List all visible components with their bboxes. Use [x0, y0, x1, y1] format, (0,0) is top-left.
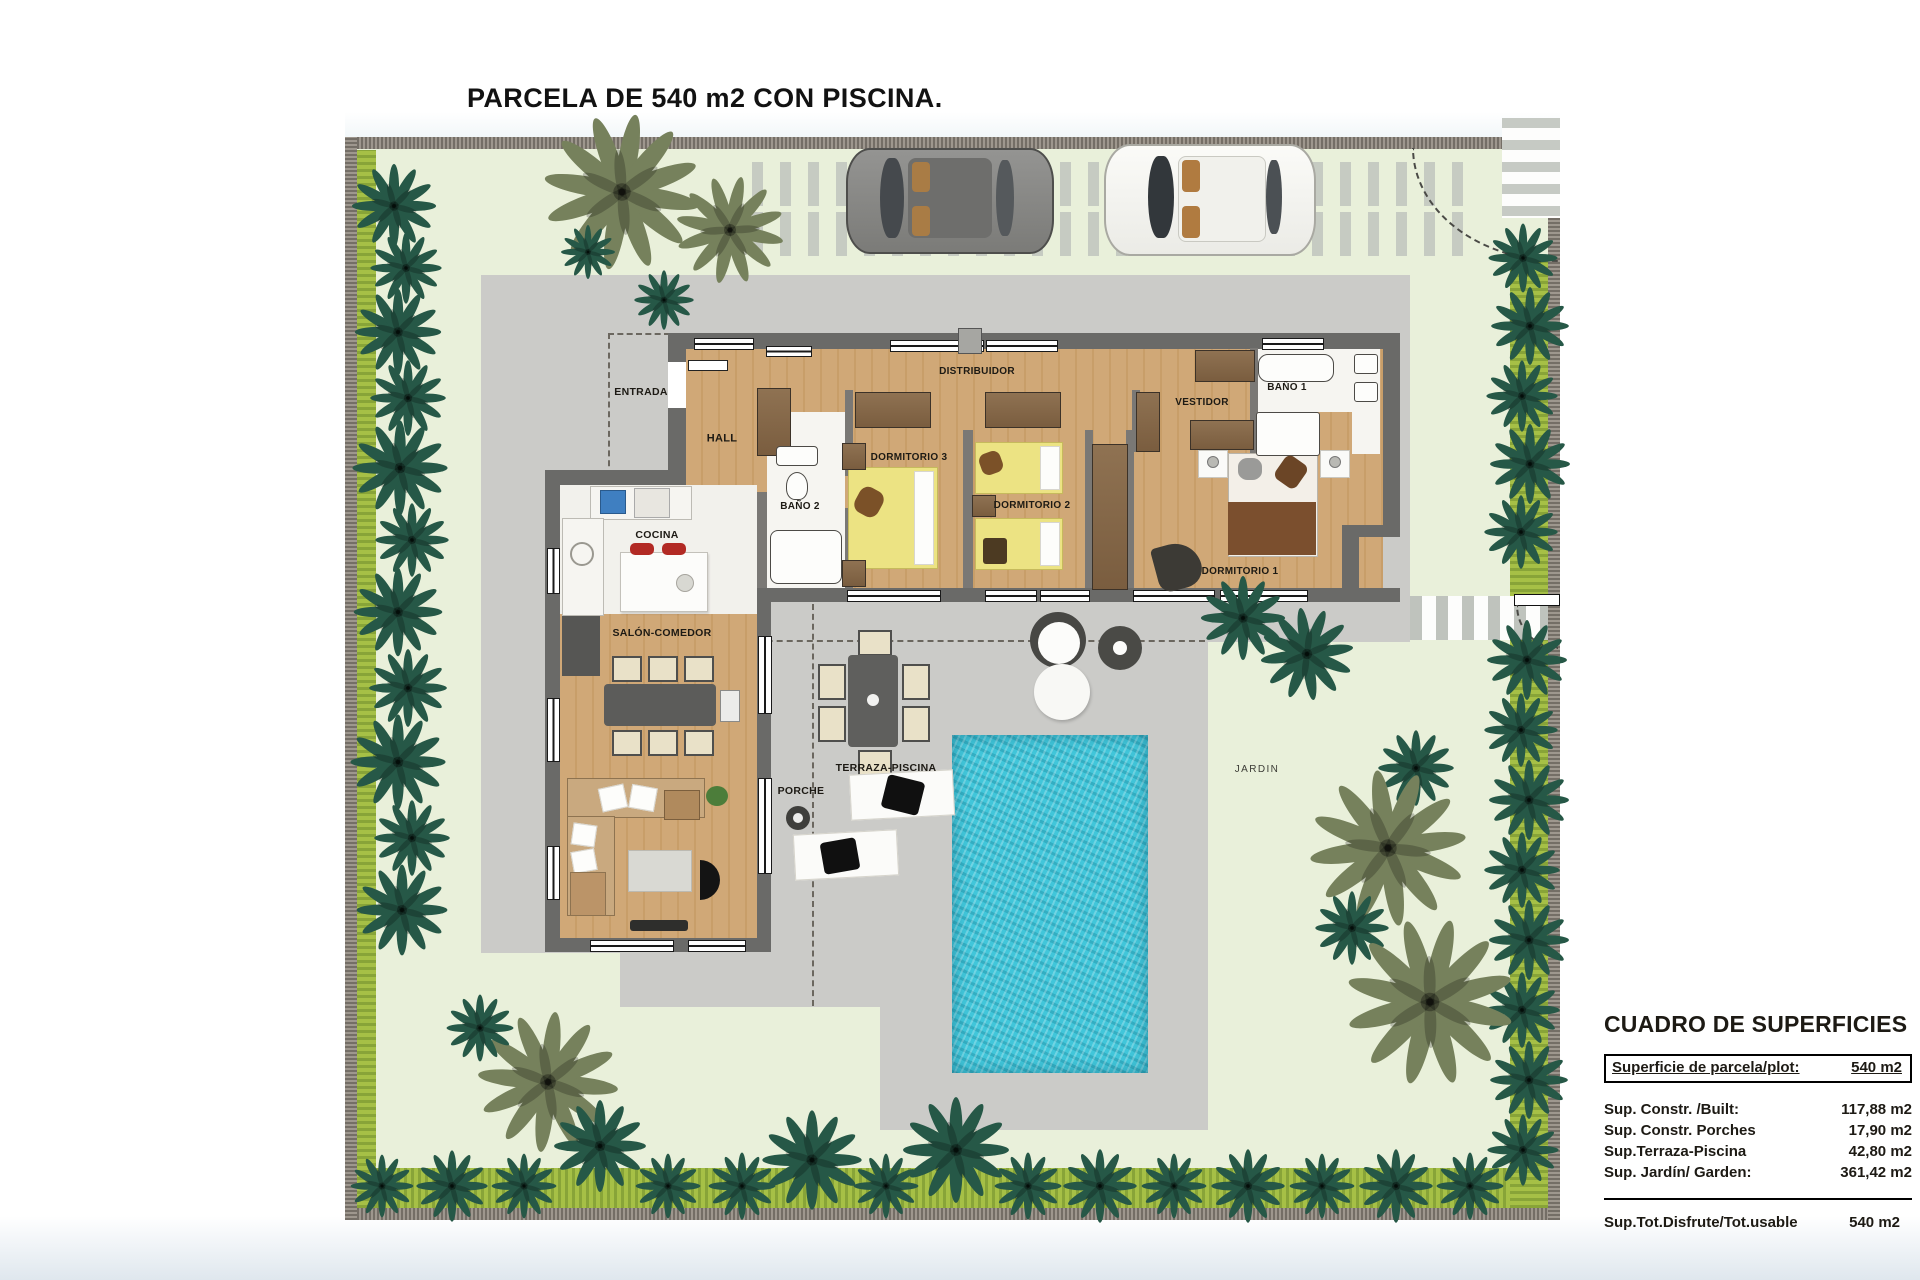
car-windshield [880, 158, 904, 238]
room-label-distribuidor: DISTRIBUIDOR [939, 367, 1015, 377]
hedge-bottom [376, 1168, 1510, 1210]
page-title: PARCELA DE 540 m2 CON PISCINA. [467, 84, 943, 114]
window [766, 346, 812, 357]
room-label-terraza-piscina: TERRAZA-PISCINA [836, 763, 937, 774]
window [1262, 338, 1324, 350]
fence-bottom [345, 1208, 1560, 1220]
surfaces-row-value: 117,88 m2 [1841, 1099, 1912, 1120]
lamp [1207, 456, 1219, 468]
dining-chair [612, 730, 642, 756]
bed-blanket [1228, 502, 1316, 555]
bed-pillow [914, 471, 934, 565]
chest [983, 538, 1007, 564]
dining-chair-end [720, 690, 740, 722]
swimming-pool [952, 735, 1148, 1073]
street-strip-top [345, 112, 1560, 137]
surfaces-row-label: Sup. Constr. Porches [1604, 1120, 1756, 1141]
porch-boundary-line [812, 604, 814, 1006]
surfaces-table: CUADRO DE SUPERFICIES Superficie de parc… [1604, 1012, 1912, 1233]
fence-left [345, 137, 357, 1220]
patio-chair [858, 630, 892, 656]
sofa-pillow [570, 848, 597, 874]
papasan-cushion [1038, 622, 1080, 664]
bathtub-bath2 [770, 530, 842, 584]
room-label-hall: HALL [707, 434, 738, 445]
sink-bath2 [776, 446, 818, 466]
surfaces-total-label: Sup.Tot.Disfrute/Tot.usable [1604, 1213, 1798, 1233]
window [985, 590, 1037, 602]
wall-east-upper [1383, 333, 1400, 537]
dining-chair [684, 656, 714, 682]
partition-bath2 [757, 492, 767, 588]
surfaces-divider [1604, 1198, 1912, 1200]
sofa-pillow [628, 784, 658, 812]
dining-chair [612, 656, 642, 682]
hedge-left [357, 150, 376, 1208]
surfaces-row: Sup.Terraza-Piscina 42,80 m2 [1604, 1141, 1912, 1162]
window [547, 846, 560, 900]
patio-chair [902, 706, 930, 742]
stool-red [662, 543, 686, 555]
sliding-door [758, 636, 772, 714]
wall-east-step [1342, 525, 1400, 537]
nightstand [842, 560, 866, 587]
entrada-walkway [608, 333, 670, 476]
window [694, 338, 754, 350]
kitchen-appliance [634, 488, 670, 518]
room-label-cocina: COCINA [635, 530, 678, 541]
surfaces-row-label: Sup.Terraza-Piscina [1604, 1141, 1746, 1162]
fire-bowl-dot [1113, 641, 1127, 655]
room-label-dormitorio3: DORMITORIO 3 [871, 453, 948, 463]
floor-plan-page: { "title": "PARCELA DE 540 m2 CON PISCIN… [0, 0, 1920, 1280]
car-seat [1182, 206, 1200, 238]
pouf-white [1034, 664, 1090, 720]
fence-right [1548, 137, 1560, 1220]
surfaces-row: Sup. Constr. Porches 17,90 m2 [1604, 1120, 1912, 1141]
surfaces-total-value: 540 m2 [1849, 1213, 1900, 1233]
surfaces-row-value: 17,90 m2 [1849, 1120, 1912, 1141]
car-gray [846, 148, 1050, 250]
surfaces-row: Sup. Constr. /Built: 117,88 m2 [1604, 1099, 1912, 1120]
patio-table-dot [867, 694, 879, 706]
window [547, 698, 560, 762]
roof-vent [958, 328, 982, 354]
surfaces-row: Sup. Jardín/ Garden: 361,42 m2 [1604, 1162, 1912, 1183]
surfaces-plot-label: Superficie de parcela/plot: [1612, 1059, 1800, 1078]
kitchen-island [620, 552, 708, 612]
car-seat [912, 206, 930, 236]
window [847, 590, 941, 602]
closet-vestidor-bottom [1190, 420, 1254, 450]
car-seat [1182, 160, 1200, 192]
sideboard [562, 616, 600, 676]
room-label-dormitorio1: DORMITORIO 1 [1202, 567, 1279, 577]
room-label-bano2: BAÑO 2 [780, 502, 820, 512]
room-label-salon-comedor: SALÓN-COMEDOR [613, 628, 712, 639]
window [590, 940, 674, 952]
room-label-jardin: JARDIN [1235, 765, 1280, 775]
room-label-dormitorio2: DORMITORIO 2 [994, 501, 1071, 511]
media-console [630, 920, 688, 931]
bath1-floor [1352, 412, 1380, 454]
surfaces-heading: CUADRO DE SUPERFICIES [1604, 1012, 1912, 1037]
surfaces-plot-value: 540 m2 [1851, 1059, 1902, 1078]
car-white [1104, 144, 1312, 252]
sink-bath1 [1354, 354, 1378, 374]
bed-pillow [1040, 446, 1060, 490]
window [1133, 590, 1215, 602]
wardrobe-column [1092, 444, 1128, 590]
window [986, 340, 1058, 352]
hall-door-leaf [688, 360, 728, 371]
kitchen-counter-left [562, 518, 604, 616]
dining-chair [648, 730, 678, 756]
closet-dorm2 [985, 392, 1061, 428]
room-label-vestidor: VESTIDOR [1175, 398, 1229, 408]
patio-chair [902, 664, 930, 700]
patio-chair [818, 664, 846, 700]
car-rear-glass [996, 160, 1014, 236]
room-label-bano1: BAÑO 1 [1267, 383, 1307, 393]
surfaces-row-label: Sup. Jardín/ Garden: [1604, 1162, 1752, 1183]
rug [628, 850, 692, 892]
hall-door-opening [668, 362, 686, 408]
closet-vestidor-top [1195, 350, 1255, 382]
surfaces-row-value: 42,80 m2 [1849, 1141, 1912, 1162]
lamp [1329, 456, 1341, 468]
sliding-door [758, 778, 772, 874]
dining-table [604, 684, 716, 726]
towel [819, 837, 860, 875]
stool-red [630, 543, 654, 555]
bowl [676, 574, 694, 592]
room-label-entrada: ENTRADA [614, 387, 667, 398]
car-seat [912, 162, 930, 192]
hedge-right [1510, 260, 1548, 1208]
surfaces-row-label: Sup. Constr. /Built: [1604, 1099, 1739, 1120]
surfaces-row-value: 361,42 m2 [1840, 1162, 1912, 1183]
window [1220, 590, 1308, 602]
window [547, 548, 560, 594]
side-table-dot [793, 813, 803, 823]
armchair [664, 790, 700, 820]
patio-chair [818, 706, 846, 742]
window [688, 940, 746, 952]
dining-chair [684, 730, 714, 756]
car-rear-glass [1266, 160, 1282, 234]
closet-dorm3 [855, 392, 931, 428]
plant [706, 786, 728, 806]
car-windshield [1148, 156, 1174, 238]
nightstand [842, 443, 866, 470]
wall-kitchen-north [545, 470, 686, 485]
nightstand [972, 495, 996, 517]
cooktop [570, 542, 594, 566]
chaise [570, 872, 606, 916]
kitchen-sink [600, 490, 626, 514]
bed-pillow [1040, 522, 1060, 566]
surfaces-plot-row: Superficie de parcela/plot: 540 m2 [1604, 1054, 1912, 1083]
room-label-porche: PORCHE [778, 786, 825, 797]
vanity-bath1 [1256, 412, 1320, 456]
bed-cushion [1238, 458, 1262, 480]
sink-bath1 [1354, 382, 1378, 402]
sofa-pillow [571, 822, 598, 847]
window [1040, 590, 1090, 602]
dining-chair [648, 656, 678, 682]
surfaces-rows: Sup. Constr. /Built: 117,88 m2 Sup. Cons… [1604, 1099, 1912, 1183]
surfaces-total-row: Sup.Tot.Disfrute/Tot.usable 540 m2 [1604, 1213, 1912, 1233]
closet-vestidor-left [1136, 392, 1160, 452]
toilet-bath2 [786, 472, 808, 500]
bathtub-bath1 [1258, 354, 1334, 382]
